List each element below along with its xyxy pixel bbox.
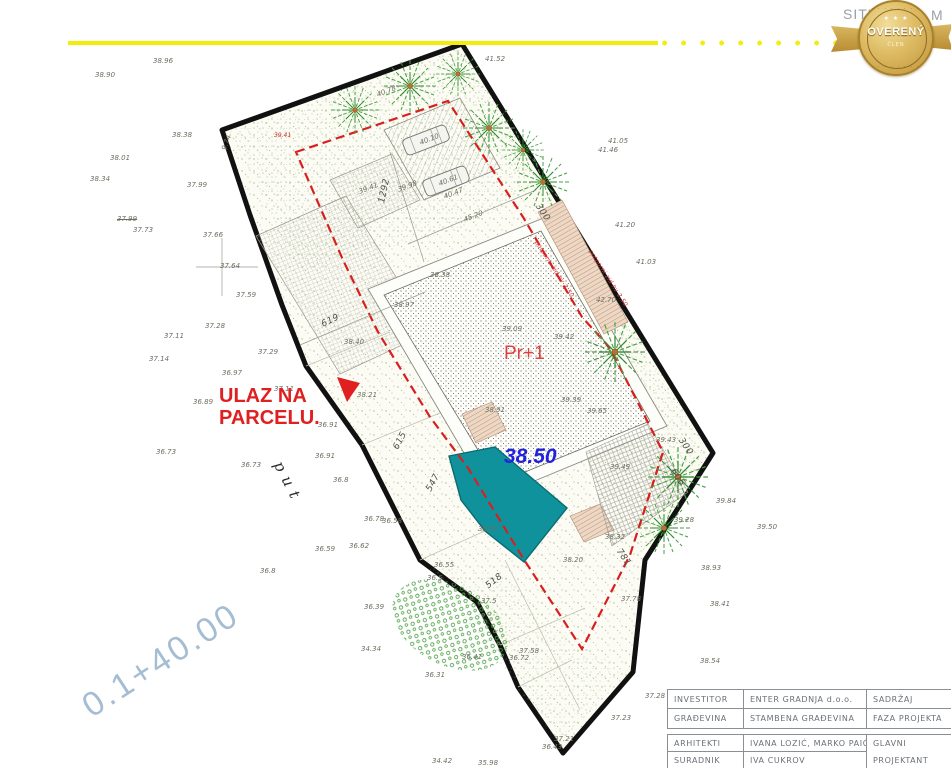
elevation-label: 36.8	[260, 567, 276, 575]
elevation-label: 39.49	[610, 463, 630, 471]
elevation-label: 37.28	[205, 322, 225, 330]
titleblock-label: ARHITEKTI	[668, 735, 744, 752]
elevation-label: 42.70	[596, 296, 616, 304]
elevation-label: 36.91	[315, 452, 335, 460]
elevation-label: 36.41	[462, 653, 482, 661]
elevation-label: 38.32	[605, 533, 625, 541]
elevation-label: 36.8	[333, 476, 349, 484]
elevation-label: 41.46	[598, 146, 618, 154]
elevation-label: 41.52	[485, 55, 505, 63]
elevation-label: 36.73	[241, 461, 261, 469]
elevation-label: 38.54	[700, 657, 720, 665]
pool-elevation-label: 38.50	[504, 445, 557, 469]
elevation-label: 36.89	[193, 398, 213, 406]
yellow-line-solid	[68, 41, 658, 45]
elevation-label: 37.11	[164, 332, 184, 340]
elevation-label: 41.03	[636, 258, 656, 266]
elevation-label: 37.28	[645, 692, 665, 700]
elevation-label: 38.40	[344, 338, 364, 346]
elevation-label: 38.96	[153, 57, 173, 65]
titleblock-value: ENTER GRADNJA d.o.o.	[744, 690, 867, 709]
elevation-label: 35.98	[478, 759, 498, 767]
elevation-label: 39.65	[587, 407, 607, 415]
elevation-label: 37.59	[236, 291, 256, 299]
elevation-label: 38.93	[701, 564, 721, 572]
elevation-label: 39.50	[757, 523, 777, 531]
elevation-label: 36.73	[156, 448, 176, 456]
elevation-label: 41.05	[608, 137, 628, 145]
titleblock-side: SADRŽAJ	[867, 690, 951, 709]
titleblock-label: GRAĐEVINA	[668, 709, 744, 728]
elevation-label: 38.34	[90, 175, 110, 183]
elevation-label: 38.01	[478, 525, 498, 533]
elevation-label: 39.84	[716, 497, 736, 505]
elevation-label: 34.42	[432, 757, 452, 765]
elevation-label: 41.20	[615, 221, 635, 229]
badge-subtext: ČLEN	[860, 42, 932, 48]
elevation-label: 37.64	[220, 262, 240, 270]
elevation-label: 38.38	[172, 131, 192, 139]
elevation-label: 37.99	[187, 181, 207, 189]
entrance-label-line1: ULAZ NA	[219, 385, 320, 407]
elevation-label: 36.58	[382, 517, 402, 525]
elevation-label: 37.14	[149, 355, 169, 363]
verified-badge: · · · · · · · · ★ ★ ★ OVERENÝ ČLEN · · ·…	[829, 0, 951, 86]
elevation-label: 37.99	[117, 215, 137, 223]
titleblock-value: IVA CUKROV	[744, 752, 867, 768]
elevation-label: 38.90	[95, 71, 115, 79]
elevation-label: 39.43	[656, 436, 676, 444]
titleblock-side: FAZA PROJEKTA	[867, 709, 951, 728]
elevation-label: 36.5	[427, 574, 443, 582]
elevation-label: 39.42	[554, 333, 574, 341]
elevation-label: 39.28	[674, 516, 694, 524]
elevation-label: 39.41	[274, 132, 291, 139]
elevation-label: 37.29	[258, 348, 278, 356]
elevation-label: 37.21	[554, 735, 574, 743]
elevation-label: 36.43	[542, 743, 562, 751]
badge-text: OVERENÝ	[860, 26, 932, 38]
elevation-label: 39.39	[561, 396, 581, 404]
elevation-label: 38.41	[710, 600, 730, 608]
elevation-label: 36.39	[364, 603, 384, 611]
elevation-label: 36.31	[425, 671, 445, 679]
elevation-label: 38.20	[563, 556, 583, 564]
titleblock-value: IVANA LOZIĆ, MARKO PAIĆ	[744, 735, 867, 752]
title-block: INVESTITOR ENTER GRADNJA d.o.o. SADRŽAJ …	[667, 689, 951, 768]
elevation-label: 36.59	[315, 545, 335, 553]
elevation-label: 37.78	[621, 595, 641, 603]
elevation-label: 37.5	[481, 597, 497, 605]
badge-medal-icon: · · · · · · · · ★ ★ ★ OVERENÝ ČLEN · · ·…	[858, 0, 934, 76]
elevation-label: 37.23	[611, 714, 631, 722]
elevation-label: 34.34	[361, 645, 381, 653]
building-storeys-label: Pr+1	[504, 343, 545, 365]
elevation-label: 38.21	[357, 391, 377, 399]
elevation-label: 36.55	[434, 561, 454, 569]
titleblock-value: STAMBENA GRAĐEVINA	[744, 709, 867, 728]
elevation-label: 37.66	[203, 231, 223, 239]
elevation-label: 38.01	[110, 154, 130, 162]
site-plan-page: 38.9638.9038.3838.0138.3437.9937.9937.73…	[0, 0, 951, 768]
titleblock-side-merged: GLAVNI PROJEKTANT	[867, 735, 951, 768]
elevation-label: 39.09	[502, 325, 522, 333]
elevation-label: 36.91	[318, 421, 338, 429]
elevation-label: 38.38	[430, 271, 450, 279]
elevation-label: 37.73	[133, 226, 153, 234]
elevation-label: 36.62	[349, 542, 369, 550]
titleblock-label: INVESTITOR	[668, 690, 744, 709]
titleblock-label: SURADNIK	[668, 752, 744, 768]
elevation-label: 38.91	[485, 406, 505, 414]
badge-stars: ★ ★ ★	[860, 15, 932, 22]
elevation-label: 36.97	[222, 369, 242, 377]
elevation-label: 38.97	[394, 301, 414, 309]
entrance-label: ULAZ NA PARCELU.	[219, 385, 320, 429]
entrance-label-line2: PARCELU.	[219, 407, 320, 429]
elevation-label: 36.72	[509, 654, 529, 662]
